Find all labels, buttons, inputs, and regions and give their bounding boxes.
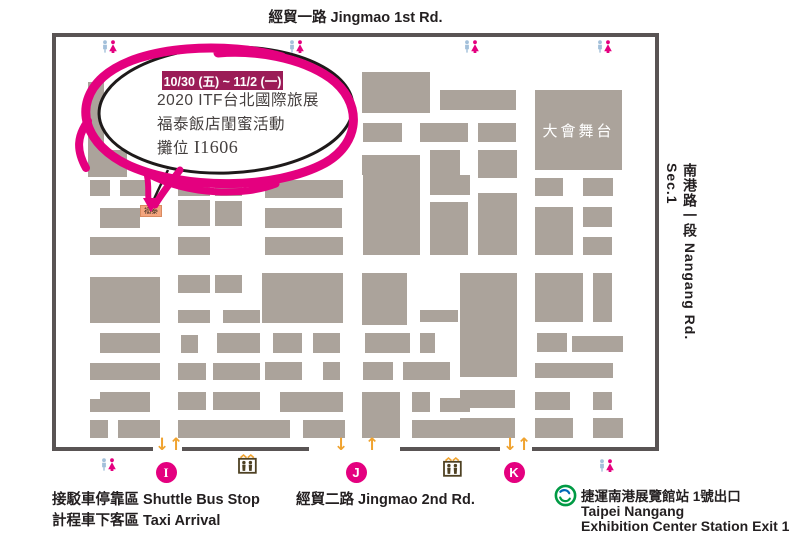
booth-block (262, 273, 343, 323)
booth-block (88, 82, 104, 153)
booth-block (260, 420, 290, 438)
booth-block (478, 193, 517, 255)
entrance-down-arrow: ↓ (503, 437, 517, 454)
map-border-right (655, 33, 659, 451)
map-border-bottom (52, 447, 153, 451)
taipei-metro-logo (554, 484, 577, 512)
restroom-icon (100, 458, 117, 472)
restroom-icon-wrap (288, 40, 305, 54)
main-stage-label: 大會舞台 (542, 120, 614, 141)
booth-number: I1606 (194, 137, 239, 157)
booth-block (90, 399, 150, 412)
booth-block (593, 392, 612, 410)
booth-block (178, 237, 210, 255)
booth-block (362, 155, 420, 175)
booth-block (178, 275, 210, 293)
map-border-bottom (182, 447, 309, 451)
booth-block (535, 418, 573, 438)
restroom-icon-wrap (596, 40, 613, 54)
booth-block (363, 123, 402, 142)
entrance-up-arrow: ↑ (169, 437, 183, 454)
booth-block (100, 392, 150, 399)
booth-block (215, 201, 242, 226)
booth-block (535, 273, 583, 322)
booth-block (323, 362, 340, 380)
booth-block (362, 273, 407, 325)
booth-block (583, 237, 612, 255)
booth-block (178, 200, 210, 226)
restroom-icon (598, 459, 615, 473)
road-label-jingmao-1st: 經貿一路 Jingmao 1st Rd. (52, 6, 659, 27)
booth-block (440, 90, 516, 110)
map-border-top (52, 33, 659, 37)
booth-block (430, 175, 470, 195)
booth-block (460, 390, 515, 408)
booth-block (120, 180, 150, 196)
booth-block (572, 336, 623, 352)
booth-block (90, 180, 110, 196)
booth-block (90, 277, 160, 323)
booth-number-line: 攤位 I1606 (157, 136, 238, 158)
entrance-down-arrow: ↓ (334, 437, 348, 454)
legend-taxi: 計程車下客區 Taxi Arrival (52, 509, 220, 530)
booth-block (537, 333, 567, 352)
booth-block (535, 207, 573, 255)
booth-block (178, 180, 210, 196)
booth-block (90, 420, 108, 438)
booth-block (100, 333, 160, 353)
bubble-accent-stroke (79, 121, 88, 168)
restroom-icon-wrap (101, 40, 118, 54)
booth-block (313, 333, 340, 353)
exhibition-floor-map: 經貿一路 Jingmao 1st Rd. 南港路一段 Nangang Rd. S… (0, 0, 800, 538)
booth-block (420, 310, 458, 322)
booth-block (420, 123, 468, 142)
entrance-up-arrow: ↑ (365, 437, 379, 454)
booth-block (460, 273, 517, 377)
booth-block (178, 392, 206, 410)
booth-block (178, 420, 260, 438)
booth-block (535, 178, 563, 196)
entrance-badge-k: K (504, 462, 525, 483)
escalator-icon-wrap (443, 456, 462, 477)
legend-shuttle-bus: 接駁車停靠區 Shuttle Bus Stop (52, 488, 260, 509)
map-border-bottom (400, 447, 500, 451)
event-title: 2020 ITF台北國際旅展 (157, 88, 319, 110)
legend-metro-station-en2: Exhibition Center Station Exit 1 (581, 518, 789, 534)
map-border-left (52, 33, 56, 451)
booth-block (363, 362, 393, 380)
fortune-hotel-booth-marker: 福泰 (140, 205, 162, 217)
booth-block (90, 237, 160, 255)
main-stage-block: 大會舞台 (535, 90, 622, 170)
booth-block (420, 333, 435, 353)
booth-block (88, 150, 127, 177)
event-subtitle: 福泰飯店閨蜜活動 (157, 112, 285, 134)
booth-block (430, 202, 468, 255)
entrance-down-arrow: ↓ (155, 437, 169, 454)
entrance-up-arrow: ↑ (517, 437, 531, 454)
booth-block (118, 420, 160, 438)
road-label-jingmao-2nd: 經貿二路 Jingmao 2nd Rd. (296, 488, 475, 509)
map-border-bottom (532, 447, 659, 451)
booth-block (100, 208, 140, 228)
booth-block (583, 207, 612, 227)
restroom-icon-wrap (463, 40, 480, 54)
booth-block (362, 72, 430, 113)
booth-block (430, 150, 460, 175)
escalator-icon (443, 456, 462, 477)
bubble-tail-line (152, 170, 168, 204)
booth-block (181, 335, 198, 353)
booth-block (478, 150, 517, 178)
booth-block (365, 333, 410, 353)
booth-block (593, 418, 623, 438)
booth-block (215, 180, 242, 196)
bubble-underline-swoosh (148, 174, 276, 192)
booth-block (265, 208, 342, 228)
booth-block (412, 392, 430, 412)
restroom-icon-wrap (100, 458, 117, 472)
booth-block (215, 275, 242, 293)
booth-block (217, 333, 260, 353)
restroom-icon-wrap (598, 459, 615, 473)
booth-block (90, 363, 160, 380)
restroom-icon (463, 40, 480, 54)
restroom-icon (596, 40, 613, 54)
booth-block (178, 310, 210, 323)
booth-block (583, 178, 613, 196)
booth-block (403, 362, 450, 380)
booth-block (363, 170, 420, 255)
booth-block (593, 273, 612, 322)
booth-block (265, 237, 343, 255)
bubble-tail-stroke-1 (155, 170, 180, 205)
booth-block (178, 363, 206, 380)
booth-block (362, 392, 400, 438)
entrance-badge-j: J (346, 462, 367, 483)
entrance-badge-i: I (156, 462, 177, 483)
escalator-icon-wrap (238, 453, 257, 474)
booth-block (478, 123, 516, 142)
booth-block (213, 363, 260, 380)
booth-block (223, 310, 260, 323)
road-label-nangang: 南港路一段 Nangang Rd. Sec.1 (664, 163, 700, 363)
booth-block (265, 362, 302, 380)
restroom-icon (288, 40, 305, 54)
booth-block (213, 392, 260, 410)
booth-block (535, 363, 613, 378)
booth-block (535, 392, 570, 410)
booth-block (265, 180, 343, 198)
booth-block (273, 333, 302, 353)
booth-block (280, 392, 343, 412)
escalator-icon (238, 453, 257, 474)
legend-metro-station-en1: Taipei Nangang (581, 503, 684, 519)
legend-metro-station: 捷運南港展覽館站 1號出口 (581, 485, 741, 505)
restroom-icon (101, 40, 118, 54)
booth-prefix: 攤位 (157, 140, 194, 157)
